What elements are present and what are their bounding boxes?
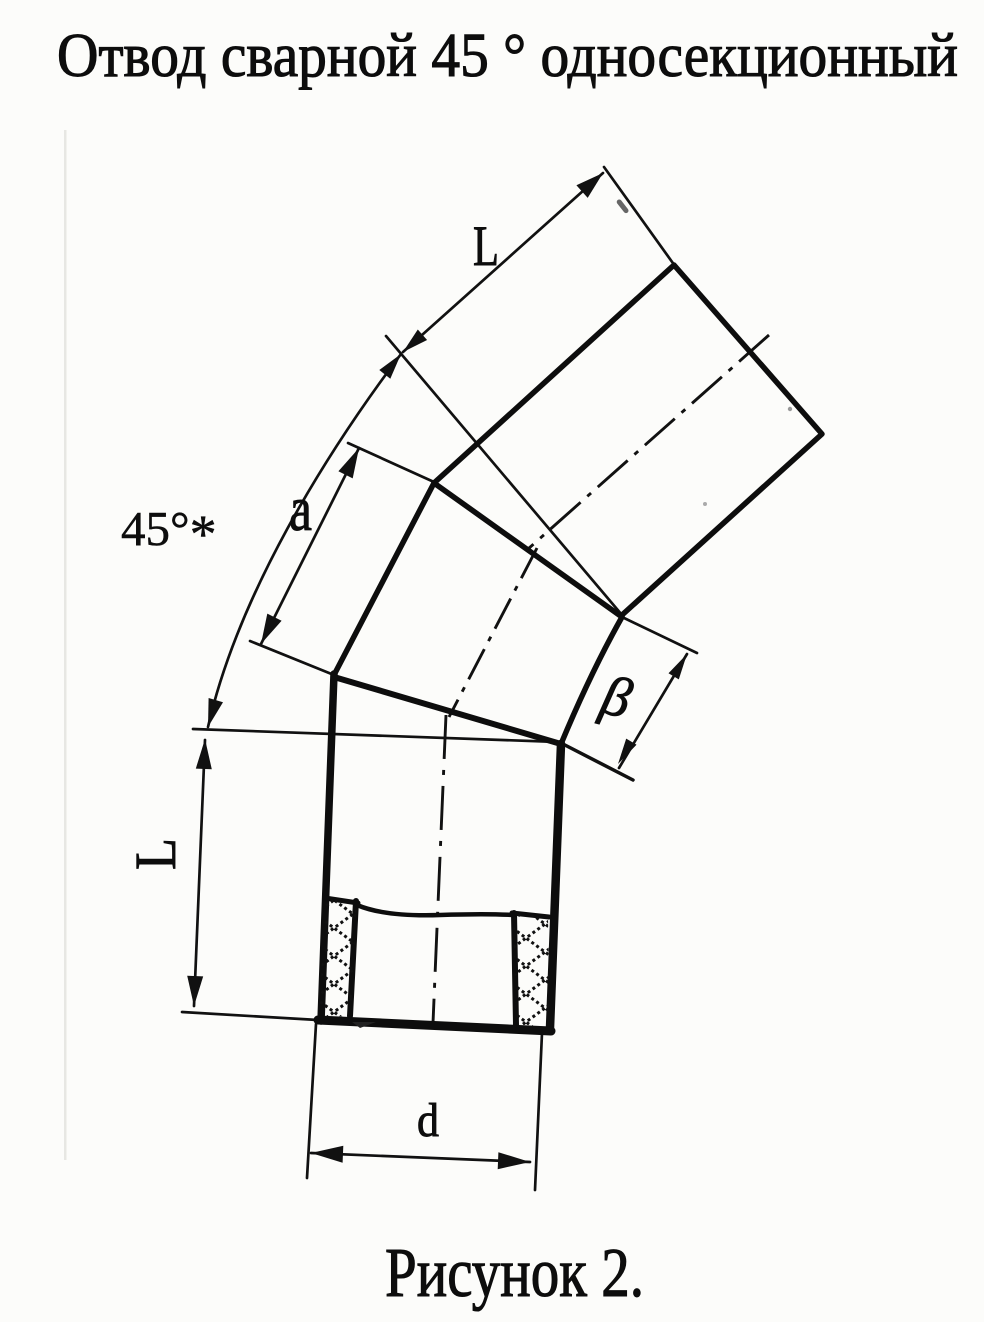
svg-text:a: a xyxy=(289,473,312,544)
svg-text:Отвод сварной 45 ° односекцион: Отвод сварной 45 ° односекционный xyxy=(57,22,958,90)
svg-text:45°*: 45°* xyxy=(121,501,217,564)
svg-text:d: d xyxy=(417,1094,439,1147)
svg-text:L: L xyxy=(473,215,499,278)
svg-text:L: L xyxy=(123,838,188,870)
svg-text:Рисунок 2.: Рисунок 2. xyxy=(385,1235,644,1312)
